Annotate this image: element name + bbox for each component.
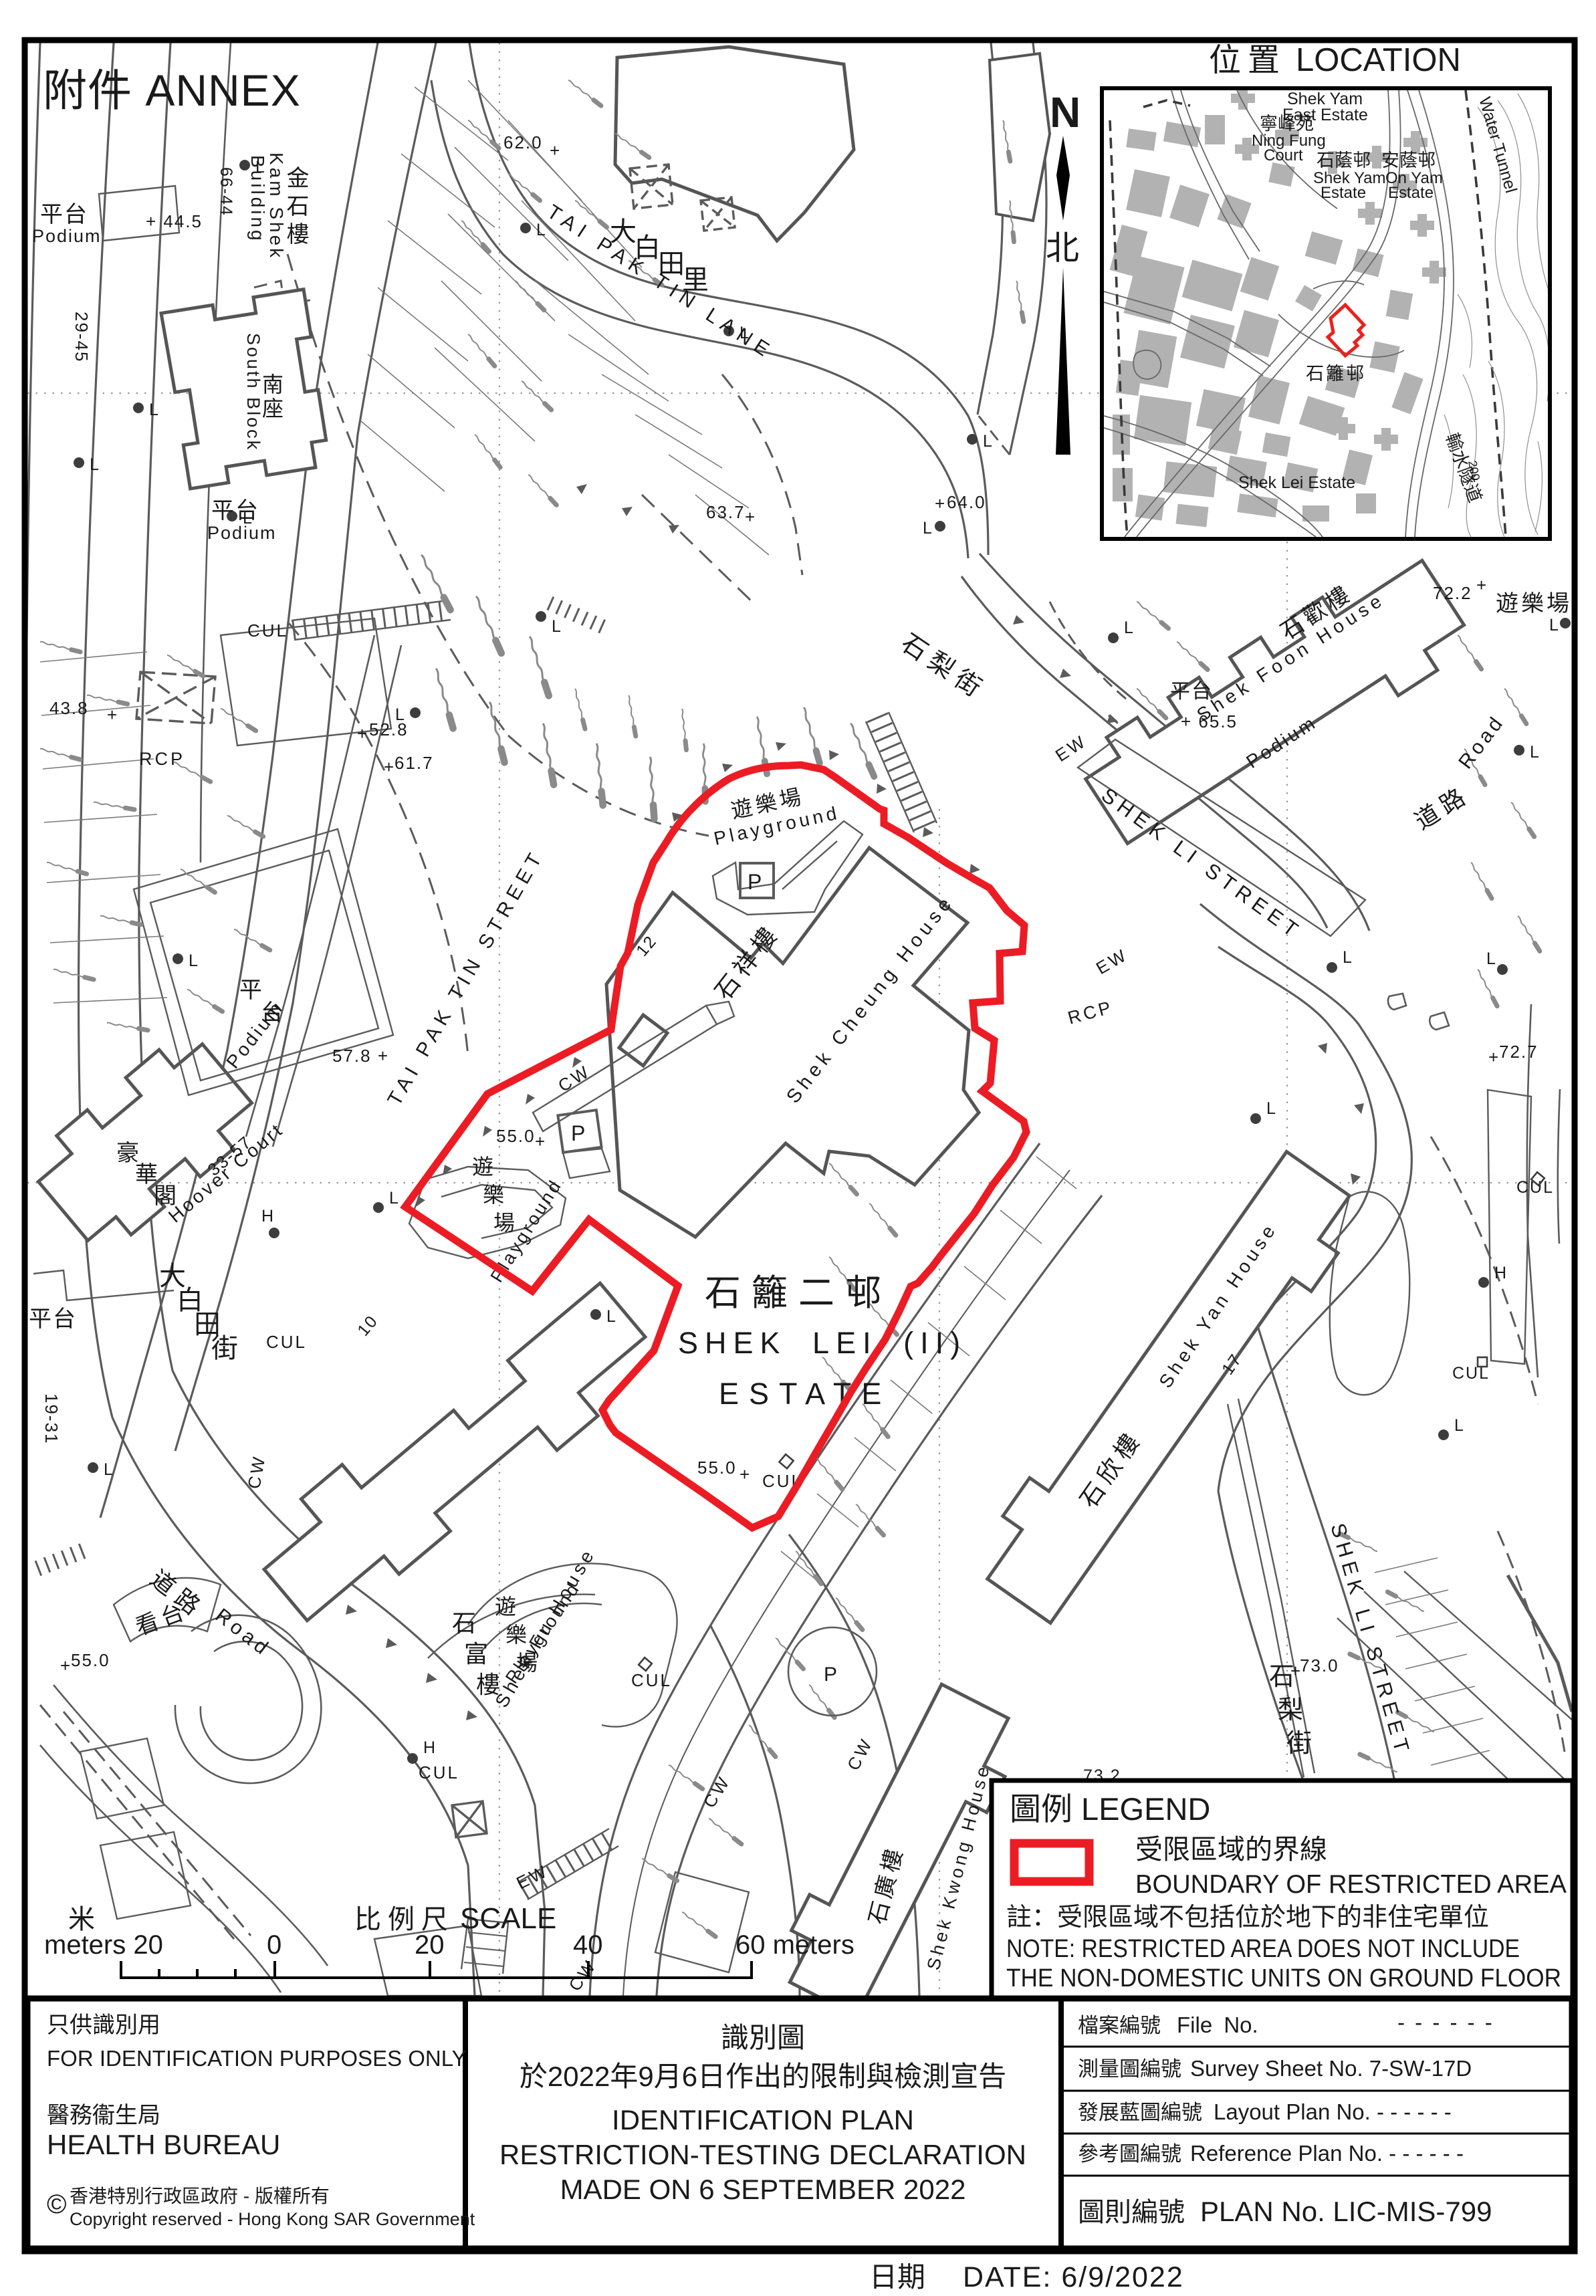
svg-text:南: 南 xyxy=(262,372,285,396)
svg-text:座: 座 xyxy=(262,396,285,421)
svg-text:SHEK LEI (II): SHEK LEI (II) xyxy=(678,1326,967,1360)
svg-text:北: 北 xyxy=(1046,229,1079,267)
svg-text:L: L xyxy=(1266,1099,1276,1118)
svg-text:街: 街 xyxy=(1286,1730,1313,1758)
svg-text:測量圖編號: 測量圖編號 xyxy=(1078,2057,1181,2081)
svg-text:©: © xyxy=(47,2190,66,2219)
svg-text:72.2: 72.2 xyxy=(1433,583,1472,603)
svg-text:日期: 日期 xyxy=(869,2261,925,2293)
svg-text:66-44: 66-44 xyxy=(217,167,235,217)
svg-text:South Block: South Block xyxy=(243,333,263,451)
svg-text:+: + xyxy=(739,1464,751,1484)
svg-text:識別圖: 識別圖 xyxy=(721,2022,805,2053)
svg-text:+: + xyxy=(107,705,118,725)
svg-text:遊樂場: 遊樂場 xyxy=(1496,591,1572,616)
svg-text:+: + xyxy=(357,723,368,743)
svg-text:64.0: 64.0 xyxy=(947,492,986,512)
svg-text:File No.: File No. xyxy=(1177,2013,1258,2037)
svg-text:CUL: CUL xyxy=(631,1670,672,1690)
svg-text:+: + xyxy=(60,1655,72,1676)
svg-text:63.7: 63.7 xyxy=(706,502,746,522)
svg-text:Reference Plan No. - - - -: Reference Plan No. - - - - - - xyxy=(1190,2141,1464,2166)
svg-text:梨: 梨 xyxy=(1278,1696,1304,1724)
svg-text:+: + xyxy=(935,493,946,513)
svg-text:Podium: Podium xyxy=(207,523,277,543)
svg-text:PLAN No. LIC-MIS-799: PLAN No. LIC-MIS-799 xyxy=(1200,2196,1492,2227)
svg-text:CUL: CUL xyxy=(1516,1178,1554,1197)
svg-text:DATE: 6/9/2022: DATE: 6/9/2022 xyxy=(963,2261,1184,2293)
svg-text:60 meters: 60 meters xyxy=(735,1930,854,1960)
svg-text:LOCATION: LOCATION xyxy=(1296,42,1461,78)
svg-text:L: L xyxy=(552,617,561,636)
svg-text:40: 40 xyxy=(573,1930,603,1960)
svg-text:72.7: 72.7 xyxy=(1499,1042,1538,1062)
svg-text:Estate: Estate xyxy=(1388,184,1434,202)
svg-text:參考圖編號: 參考圖編號 xyxy=(1078,2142,1181,2166)
svg-text:L: L xyxy=(536,221,546,239)
svg-text:Court: Court xyxy=(1264,146,1303,164)
svg-text:石籬邨: 石籬邨 xyxy=(1306,364,1366,384)
svg-text:遊: 遊 xyxy=(472,1155,495,1179)
svg-text:L: L xyxy=(606,1307,616,1326)
svg-text:CUL: CUL xyxy=(247,620,288,641)
svg-text:遊: 遊 xyxy=(495,1595,518,1619)
svg-text:香港特別行政區政府 - 版權所有: 香港特別行政區政府 - 版權所有 xyxy=(70,2186,330,2206)
svg-text:55.0: 55.0 xyxy=(697,1458,737,1478)
svg-text:73.0: 73.0 xyxy=(1300,1655,1339,1676)
svg-text:29-45: 29-45 xyxy=(72,312,92,363)
svg-text:MADE ON 6 SEPTEMBER 2022: MADE ON 6 SEPTEMBER 2022 xyxy=(560,2174,966,2205)
svg-text:發展藍圖編號: 發展藍圖編號 xyxy=(1078,2101,1202,2124)
svg-text:61.7: 61.7 xyxy=(394,753,434,773)
svg-text:IDENTIFICATION PLAN: IDENTIFICATION PLAN xyxy=(612,2104,914,2136)
svg-text:Estate: Estate xyxy=(1321,184,1366,202)
svg-text:L: L xyxy=(104,1460,113,1479)
svg-text:+: + xyxy=(1476,575,1488,595)
svg-text:0: 0 xyxy=(267,1930,281,1960)
svg-text:Layout Plan No. - - - - -: Layout Plan No. - - - - - - xyxy=(1214,2099,1452,2124)
svg-text:meters 20: meters 20 xyxy=(44,1930,163,1960)
svg-text:55.0: 55.0 xyxy=(496,1126,536,1146)
svg-text:BOUNDARY OF RESTRICTED AREA: BOUNDARY OF RESTRICTED AREA xyxy=(1135,1870,1567,1899)
svg-text:Podium: Podium xyxy=(32,226,102,246)
svg-text:RESTRICTION-TESTING DECLARATIO: RESTRICTION-TESTING DECLARATION xyxy=(499,2139,1026,2170)
svg-text:55.0: 55.0 xyxy=(71,1650,110,1670)
svg-text:L: L xyxy=(1486,949,1496,968)
svg-text:H: H xyxy=(423,1738,435,1757)
svg-text:街: 街 xyxy=(211,1334,239,1363)
svg-text:P: P xyxy=(571,1121,586,1145)
svg-text:石籬二邨: 石籬二邨 xyxy=(705,1273,892,1313)
svg-text:平台: 平台 xyxy=(211,498,259,524)
svg-text:平台: 平台 xyxy=(40,202,88,227)
svg-text:Shek Lei Estate: Shek Lei Estate xyxy=(1238,473,1355,492)
svg-text:圖例 LEGEND: 圖例 LEGEND xyxy=(1010,1791,1210,1827)
svg-text:L: L xyxy=(1549,616,1559,635)
svg-text:L: L xyxy=(1124,618,1133,637)
svg-text:場: 場 xyxy=(493,1211,516,1235)
svg-text:+ 65.5: + 65.5 xyxy=(1181,711,1238,731)
svg-text:52.8: 52.8 xyxy=(369,719,409,739)
svg-text:N: N xyxy=(1050,88,1080,136)
svg-text:+ 44.5: + 44.5 xyxy=(146,211,203,231)
svg-text:Copyright reserved - Hong Kong: Copyright reserved - Hong Kong SAR Gover… xyxy=(70,2209,475,2229)
svg-text:平台: 平台 xyxy=(1170,681,1213,703)
svg-text:樂: 樂 xyxy=(483,1183,505,1207)
svg-text:只供識別用: 只供識別用 xyxy=(47,2013,160,2038)
svg-text:NOTE: RESTRICTED AREA DOES NOT: NOTE: RESTRICTED AREA DOES NOT INCLUDE xyxy=(1006,1935,1520,1963)
svg-text:L: L xyxy=(923,519,932,538)
svg-text:位置: 位置 xyxy=(1209,43,1286,78)
svg-text:- - - - - -: - - - - - - xyxy=(1397,2010,1494,2035)
svg-text:平台: 平台 xyxy=(29,1306,77,1332)
svg-text:醫務衞生局: 醫務衞生局 xyxy=(47,2103,160,2128)
svg-text:P: P xyxy=(824,1663,838,1686)
svg-text:FOR IDENTIFICATION PURPOSES ON: FOR IDENTIFICATION PURPOSES ONLY xyxy=(47,2046,467,2071)
svg-text:L: L xyxy=(90,455,99,474)
svg-text:CUL: CUL xyxy=(419,1762,459,1783)
svg-text:+: + xyxy=(745,507,756,527)
svg-text:HEALTH BUREAU: HEALTH BUREAU xyxy=(47,2129,280,2160)
svg-text:P: P xyxy=(748,870,763,894)
svg-text:註：受限區域不包括位於地下的非住宅單位: 註：受限區域不包括位於地下的非住宅單位 xyxy=(1006,1904,1489,1932)
svg-text:附件 ANNEX: 附件 ANNEX xyxy=(43,66,301,115)
svg-text:43.8: 43.8 xyxy=(49,698,89,718)
svg-text:+: + xyxy=(535,1131,546,1151)
svg-text:ESTATE: ESTATE xyxy=(719,1377,891,1411)
svg-text:+: + xyxy=(550,140,561,160)
svg-text:CUL: CUL xyxy=(266,1332,307,1352)
svg-text:19-31: 19-31 xyxy=(41,1393,62,1445)
svg-text:20: 20 xyxy=(415,1930,445,1960)
svg-text:L: L xyxy=(189,951,198,970)
svg-text:富: 富 xyxy=(464,1640,489,1668)
svg-text:Kam Shek: Kam Shek xyxy=(266,152,287,260)
svg-text:H: H xyxy=(261,1207,273,1226)
svg-text:L: L xyxy=(149,400,158,419)
svg-text:石: 石 xyxy=(452,1609,477,1637)
svg-text:平: 平 xyxy=(239,978,263,1003)
svg-text:Building: Building xyxy=(247,155,268,243)
svg-text:寧峰苑: 寧峰苑 xyxy=(1260,114,1314,134)
svg-text:57.8 +: 57.8 + xyxy=(332,1046,389,1066)
svg-text:RCP: RCP xyxy=(139,749,185,769)
svg-text:THE NON-DOMESTIC UNITS ON GROU: THE NON-DOMESTIC UNITS ON GROUND FLOOR xyxy=(1006,1964,1561,1992)
svg-text:檔案編號: 檔案編號 xyxy=(1078,2014,1161,2037)
svg-text:Survey Sheet No. 7-SW-17D: Survey Sheet No. 7-SW-17D xyxy=(1190,2056,1472,2081)
svg-text:L: L xyxy=(389,1189,398,1208)
svg-text:圖則編號: 圖則編號 xyxy=(1078,2198,1185,2227)
svg-text:安蔭邨: 安蔭邨 xyxy=(1381,150,1436,170)
svg-text:於2022年9月6日作出的限制與檢測宣告: 於2022年9月6日作出的限制與檢測宣告 xyxy=(520,2061,1006,2092)
svg-text:62.0: 62.0 xyxy=(503,132,543,152)
svg-text:L: L xyxy=(1530,743,1539,762)
svg-text:H: H xyxy=(1494,1264,1506,1282)
svg-text:SCALE: SCALE xyxy=(460,1902,556,1935)
svg-text:受限區域的界線: 受限區域的界線 xyxy=(1135,1834,1327,1865)
svg-text:+: + xyxy=(1488,1047,1500,1067)
svg-text:+: + xyxy=(384,757,395,777)
svg-text:L: L xyxy=(1343,948,1352,967)
svg-text:L: L xyxy=(1454,1416,1464,1435)
svg-text:石蔭邨: 石蔭邨 xyxy=(1317,150,1371,170)
svg-text:L: L xyxy=(983,432,992,451)
